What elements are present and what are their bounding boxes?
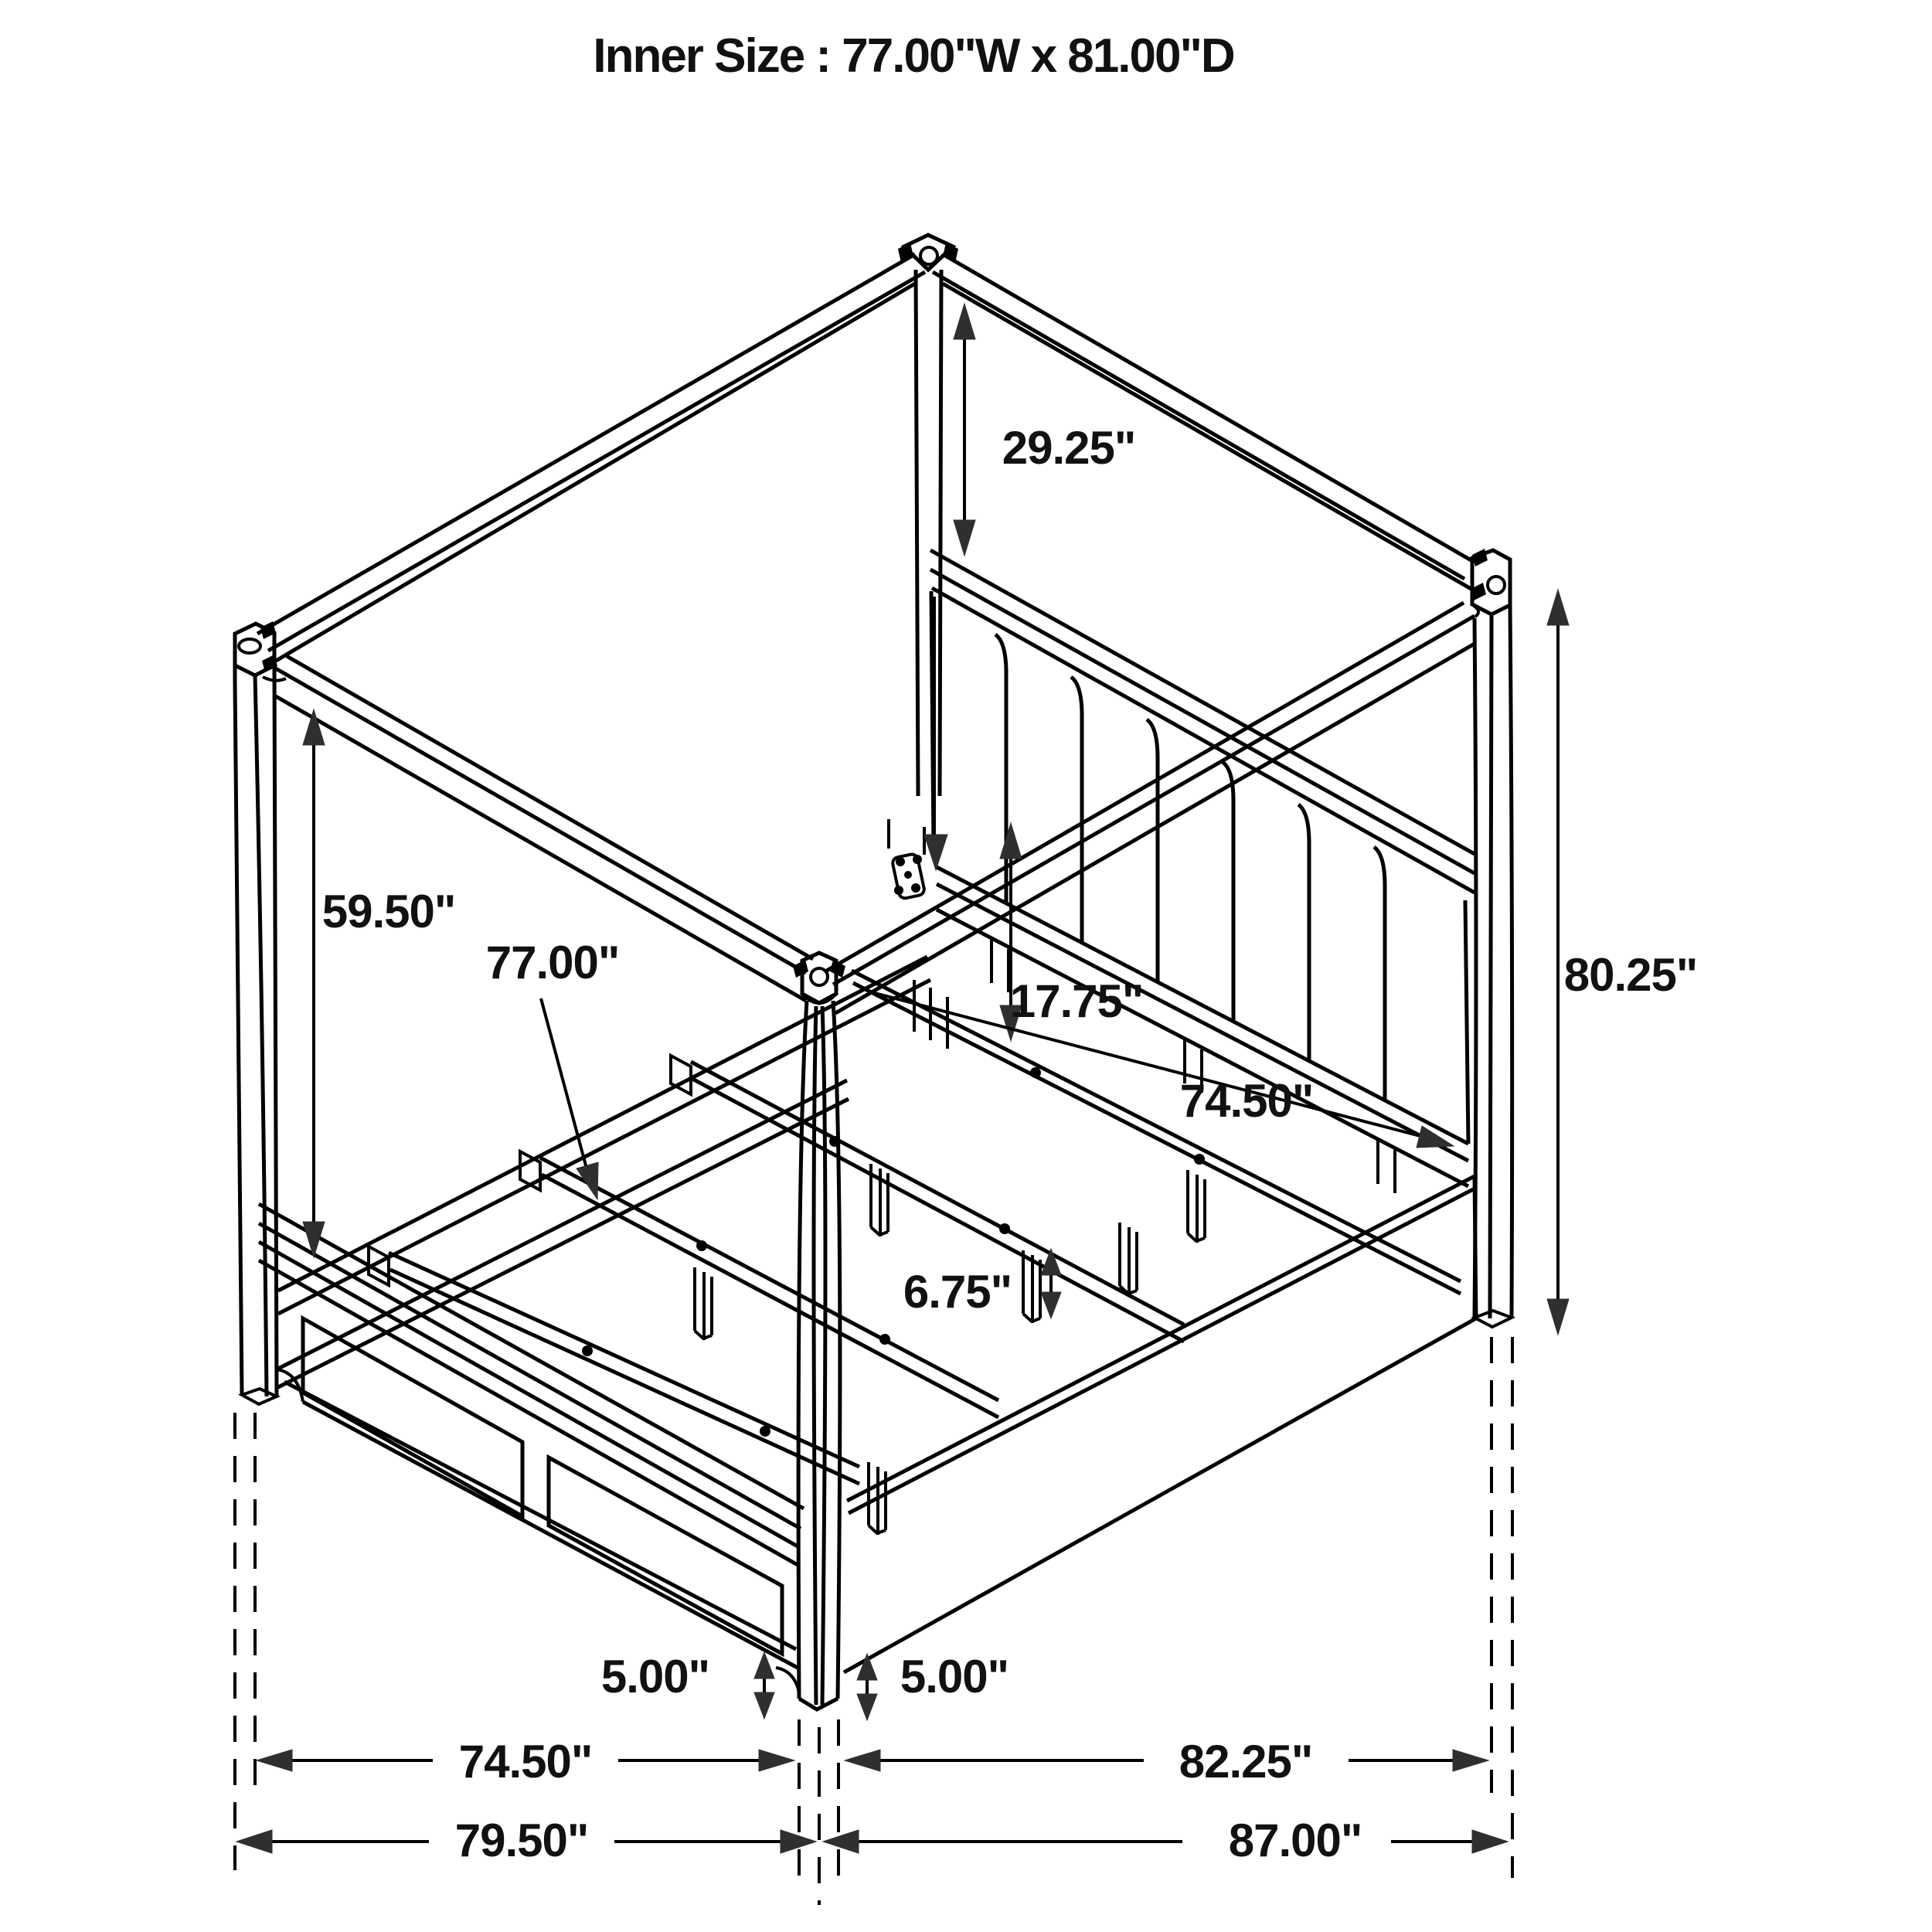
svg-text:80.25": 80.25" [1564,949,1698,1001]
svg-text:6.75": 6.75" [903,1266,1012,1318]
svg-text:77.00": 77.00" [486,937,620,988]
svg-text:59.50": 59.50" [322,886,456,937]
svg-text:82.25": 82.25" [1179,1736,1313,1787]
svg-text:79.50": 79.50" [455,1815,589,1866]
svg-text:74.50": 74.50" [1180,1075,1314,1127]
svg-text:5.00": 5.00" [900,1651,1009,1702]
svg-text:87.00": 87.00" [1229,1815,1362,1866]
svg-text:5.00": 5.00" [601,1651,709,1702]
svg-text:Inner Size : 77.00"W x 81.00"D: Inner Size : 77.00"W x 81.00"D [593,29,1234,83]
svg-text:17.75": 17.75" [1010,975,1144,1027]
svg-text:29.25": 29.25" [1002,422,1136,474]
svg-text:74.50": 74.50" [459,1736,593,1787]
